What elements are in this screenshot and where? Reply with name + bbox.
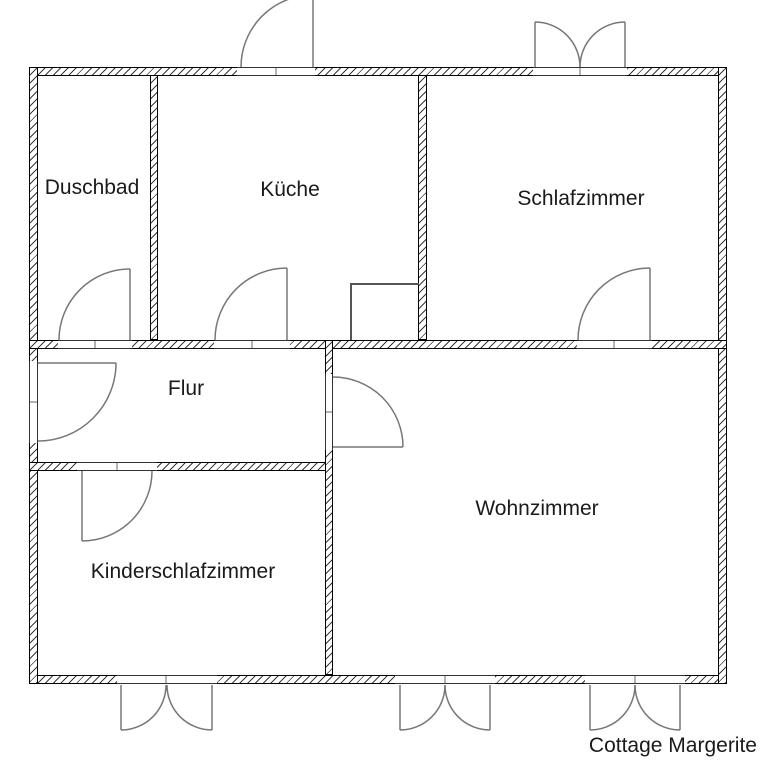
double-door-kinderschlafzimmer-bottom <box>121 685 212 730</box>
door-kinderschlafzimmer <box>82 471 152 541</box>
opening-wohnzimmer-door <box>325 374 333 450</box>
room-label-wohnzimmer: Wohnzimmer <box>475 497 598 521</box>
door-arc <box>215 268 287 340</box>
opening-kinderschlafzimmer-double-door <box>117 675 217 684</box>
door-arc <box>121 685 166 730</box>
wall-kueche-schlafzimmer <box>418 75 427 340</box>
door-arc <box>590 685 635 730</box>
opening-schlafzimmer-door <box>577 340 652 349</box>
double-door-schlafzimmer-top <box>535 22 625 67</box>
opening-wohnzimmer-double-door-1 <box>395 675 495 684</box>
wall-outer-right <box>718 67 727 684</box>
door-arc <box>580 22 625 67</box>
door-kueche-entry <box>241 0 313 67</box>
double-door-wohnzimmer-bottom-2 <box>590 685 680 730</box>
door-flur-entry <box>38 363 116 441</box>
room-label-kueche: Küche <box>260 178 320 202</box>
room-label-duschbad: Duschbad <box>45 176 140 200</box>
door-arc <box>241 0 313 67</box>
opening-kueche-entry <box>237 67 315 76</box>
wall-duschbad-kueche <box>150 75 158 340</box>
door-arc <box>535 22 580 67</box>
door-arc <box>167 685 212 730</box>
door-arc <box>38 363 116 441</box>
door-kueche <box>215 268 287 340</box>
door-schlafzimmer <box>578 268 650 340</box>
room-label-schlafzimmer: Schlafzimmer <box>517 187 644 211</box>
door-arc <box>400 685 445 730</box>
kueche-shaft-outline <box>351 284 419 340</box>
wall-flur-bottom <box>29 462 333 471</box>
door-arc <box>578 268 650 340</box>
opening-kueche-door <box>214 340 290 349</box>
double-door-wohnzimmer-bottom-1 <box>400 685 490 730</box>
opening-schlafzimmer-double-door <box>533 67 627 76</box>
door-arc <box>59 269 130 340</box>
opening-flur-entry <box>29 361 38 443</box>
floor-plan: Duschbad Küche Schlafzimmer Flur Kinders… <box>0 0 760 764</box>
doors-overlay <box>0 0 760 764</box>
door-arc <box>333 377 403 447</box>
room-label-flur: Flur <box>168 377 204 401</box>
plan-caption: Cottage Margerite <box>589 734 757 758</box>
door-arc <box>445 685 490 730</box>
opening-kinderschlafzimmer-door <box>77 462 157 471</box>
opening-duschbad-door <box>58 340 132 349</box>
room-label-kinderschlafzimmer: Kinderschlafzimmer <box>91 560 275 584</box>
door-duschbad <box>59 269 130 340</box>
door-arc <box>82 471 152 541</box>
door-wohnzimmer <box>333 377 403 447</box>
door-arc <box>635 685 680 730</box>
opening-wohnzimmer-double-door-2 <box>585 675 685 684</box>
